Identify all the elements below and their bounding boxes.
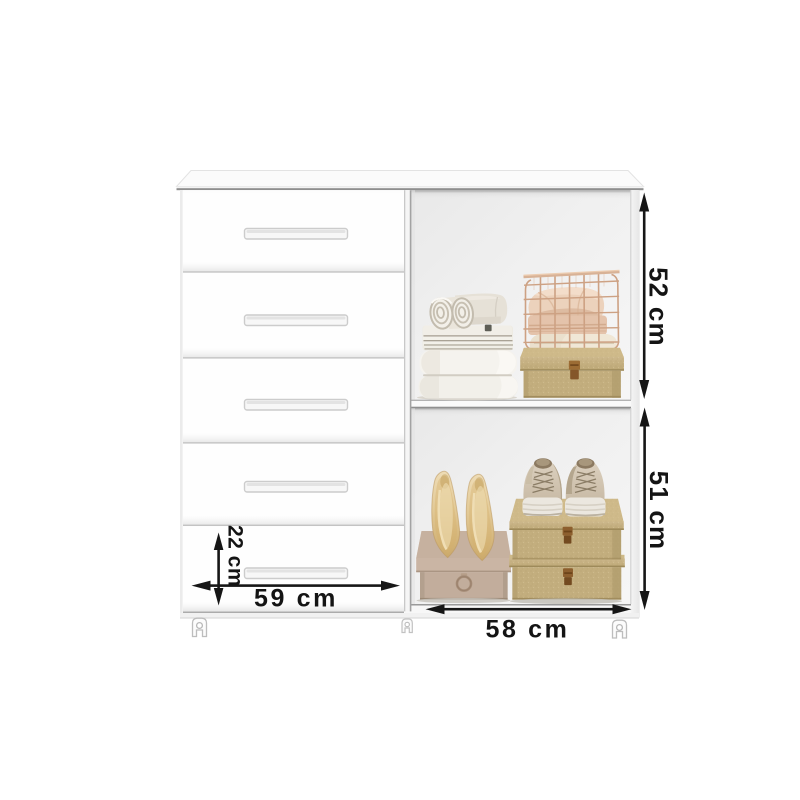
svg-text:59 cm: 59 cm <box>254 585 338 613</box>
svg-text:58 cm: 58 cm <box>486 616 570 644</box>
svg-text:52 cm: 52 cm <box>644 267 674 347</box>
svg-text:51 cm: 51 cm <box>644 471 674 551</box>
svg-text:22 cm: 22 cm <box>224 525 247 587</box>
